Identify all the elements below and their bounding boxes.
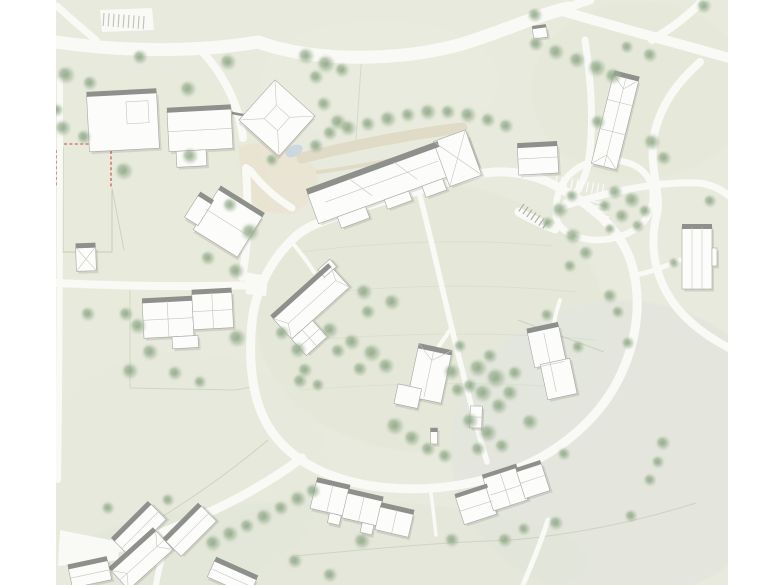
tree-canopy-core (300, 365, 308, 373)
tree-canopy-core (500, 535, 508, 543)
building-roof (517, 145, 558, 175)
tree (114, 161, 134, 181)
tree-canopy-core (623, 338, 630, 345)
tree (193, 375, 207, 389)
tree (655, 435, 671, 451)
tree-canopy-core (313, 380, 320, 387)
tree (602, 288, 618, 304)
tree (239, 518, 255, 534)
tree (330, 343, 346, 359)
tree-canopy-core (276, 503, 284, 511)
tree-canopy-core (382, 113, 391, 122)
tree (377, 357, 395, 375)
tree (703, 194, 717, 208)
tree-canopy-core (581, 248, 589, 256)
tree-canopy-core (600, 201, 607, 208)
tree (494, 438, 510, 454)
tree (521, 413, 539, 431)
tree-canopy-core (311, 72, 319, 80)
tree (219, 53, 237, 71)
tree (453, 339, 467, 353)
tree (400, 107, 416, 123)
tree (221, 525, 239, 543)
tree (598, 199, 612, 213)
tree (490, 397, 508, 415)
tree (227, 328, 247, 348)
parking-stalls (113, 14, 114, 27)
tree (443, 363, 461, 381)
tree-canopy-core (358, 286, 367, 295)
tree (568, 51, 586, 69)
tree-canopy-core (440, 451, 448, 459)
tree (623, 191, 641, 209)
tree (200, 250, 216, 266)
tree (308, 69, 324, 85)
tree (621, 336, 635, 350)
tree-canopy-core (83, 309, 91, 317)
tree (352, 361, 368, 377)
tree-canopy-core (300, 50, 309, 59)
tree-canopy-core (319, 58, 329, 68)
parking-stalls (108, 13, 109, 26)
site-plan-page (0, 0, 780, 585)
tree-canopy-core (224, 528, 233, 537)
tree-canopy-core (386, 296, 395, 305)
tree (548, 515, 564, 531)
tree (308, 138, 324, 154)
tree-canopy-core (203, 253, 211, 261)
tree-canopy-core (292, 344, 301, 353)
tree-canopy-core (346, 336, 355, 345)
tree-canopy-core (446, 366, 455, 375)
road-junction (244, 272, 268, 296)
tree-canopy-core (242, 521, 250, 529)
tree (287, 553, 303, 569)
building-house-nw-a (86, 88, 161, 154)
tree-canopy-core (443, 107, 451, 115)
tree-canopy-core (453, 385, 461, 393)
tree (482, 348, 498, 364)
tree-canopy-core (447, 535, 455, 543)
tree (360, 304, 376, 320)
tree (322, 125, 338, 141)
tree-canopy-core (464, 415, 473, 424)
tree-canopy-core (640, 206, 647, 213)
tree-canopy-core (501, 121, 509, 129)
tree (638, 204, 652, 218)
tree-canopy-core (633, 221, 640, 228)
tree (274, 325, 290, 341)
plan-area (30, 0, 780, 585)
tree-canopy-core (645, 50, 653, 58)
tree (497, 532, 513, 548)
tree (557, 447, 571, 461)
tree-canopy-core (504, 387, 513, 396)
tree (167, 365, 183, 381)
tree-canopy-core (79, 132, 87, 140)
parking-stalls (133, 15, 134, 28)
tree-canopy-core (497, 441, 505, 449)
tree (480, 112, 496, 128)
tree-canopy-core (567, 230, 576, 239)
tree-canopy-core (406, 432, 415, 441)
tree-canopy-core (670, 259, 676, 265)
tree (322, 567, 338, 583)
tree-canopy-core (567, 191, 574, 198)
tree-canopy-core (124, 365, 133, 374)
tree-canopy-core (483, 115, 491, 123)
tree-canopy-core (380, 360, 389, 369)
tree-canopy-core (103, 503, 110, 510)
tree (571, 340, 585, 354)
tree (624, 509, 638, 523)
tree-canopy-core (52, 105, 59, 112)
building-roof (87, 92, 160, 152)
tree (528, 36, 544, 52)
road (58, 80, 60, 480)
tree-canopy-core (222, 56, 231, 65)
tree-canopy-core (493, 400, 502, 409)
parking-stalls (143, 16, 144, 29)
tree (132, 49, 148, 65)
tree (54, 119, 72, 137)
tree-canopy-core (705, 196, 712, 203)
tree-canopy-core (590, 62, 600, 72)
tree-canopy-core (277, 328, 285, 336)
tree-canopy-core (571, 54, 580, 63)
tree-canopy-core (610, 187, 618, 195)
tree (420, 441, 436, 457)
tree (507, 365, 523, 381)
tree-canopy-core (230, 265, 239, 274)
tree (56, 65, 76, 85)
tree (656, 150, 672, 166)
tree (642, 47, 658, 63)
tree (289, 490, 307, 508)
tree-canopy-core (646, 136, 655, 145)
tree (547, 43, 565, 61)
tree (604, 223, 616, 235)
tree-canopy-core (531, 39, 539, 47)
tree (643, 133, 661, 151)
tree-canopy-core (471, 362, 481, 372)
tree (590, 114, 606, 130)
field-patch (530, 0, 750, 180)
tree (343, 333, 361, 351)
tree (305, 483, 321, 499)
tree (353, 532, 371, 550)
tree (563, 259, 577, 273)
tree (316, 96, 332, 112)
tree (362, 343, 382, 363)
tree (161, 493, 175, 507)
tree-canopy-core (308, 486, 316, 494)
tree-canopy-core (342, 122, 351, 131)
tree-canopy-core (144, 346, 153, 355)
building-roof (712, 248, 717, 266)
tree-canopy-core (658, 438, 666, 446)
tree (587, 58, 607, 78)
tree (255, 508, 273, 526)
tree-canopy-core (184, 150, 193, 159)
tree (578, 245, 594, 261)
tree-canopy-core (489, 371, 500, 382)
tree-canopy-core (645, 475, 652, 482)
tree (222, 197, 238, 213)
tree (227, 262, 245, 280)
tree (540, 308, 554, 322)
parking-stalls (128, 15, 129, 28)
tree (121, 362, 139, 380)
tree-canopy-core (659, 153, 667, 161)
tree-canopy-core (473, 444, 481, 452)
tree (334, 62, 350, 78)
tree-canopy-core (355, 364, 363, 372)
tree-canopy-core (365, 347, 375, 357)
tree (541, 216, 555, 230)
tree-canopy-core (607, 70, 616, 79)
tree (498, 118, 514, 134)
tree (461, 412, 479, 430)
tree (440, 104, 456, 120)
building-shed-h (75, 243, 98, 274)
tree (311, 378, 325, 392)
tree-canopy-core (626, 511, 633, 518)
tree (565, 189, 579, 203)
tree-canopy-core (423, 444, 431, 452)
parking-stalls (103, 13, 104, 26)
tree-canopy-core (455, 341, 462, 348)
tree-canopy-core (485, 351, 493, 359)
tree-canopy-core (613, 307, 620, 314)
tree (265, 153, 279, 167)
tree (631, 219, 645, 233)
tree (527, 7, 543, 23)
tree-canopy-core (292, 493, 301, 502)
tree-canopy-core (132, 320, 141, 329)
tree-canopy-core (422, 106, 431, 115)
tree-canopy-core (465, 381, 473, 389)
tree-canopy-core (117, 165, 127, 175)
tree-canopy-core (325, 570, 333, 578)
tree-canopy-core (605, 291, 613, 299)
tree-canopy-core (57, 122, 66, 131)
tree-canopy-core (388, 420, 398, 430)
tree-canopy-core (319, 99, 327, 107)
tree (50, 103, 64, 117)
tree (551, 201, 569, 219)
tree-canopy-core (311, 141, 319, 149)
tree (611, 305, 625, 319)
tree (462, 378, 478, 394)
tree (403, 429, 421, 447)
tree (292, 373, 308, 389)
tree-canopy-core (337, 65, 345, 73)
tree (459, 106, 477, 124)
tree (80, 306, 96, 322)
tree (564, 227, 582, 245)
tree-canopy-core (363, 307, 371, 315)
tree-canopy-core (593, 117, 601, 125)
tree-canopy-core (653, 457, 660, 464)
tree-canopy-core (333, 346, 341, 354)
tree-canopy-core (135, 52, 143, 60)
tree (82, 75, 98, 91)
tree-canopy-core (267, 155, 274, 162)
tree-canopy-core (163, 495, 170, 502)
tree-canopy-core (524, 416, 533, 425)
tree (614, 208, 630, 224)
tree-canopy-core (295, 376, 303, 384)
tree-canopy-core (606, 225, 612, 231)
tree (118, 306, 134, 322)
tree-canopy-core (542, 310, 549, 317)
tree (517, 522, 531, 536)
tree-canopy-core (559, 449, 566, 456)
tree (297, 47, 315, 65)
tree (76, 129, 92, 145)
parking-stalls (123, 15, 124, 28)
building-house-f (682, 224, 719, 292)
tree-canopy-core (530, 10, 538, 18)
tree-canopy-core (543, 218, 550, 225)
tree (478, 423, 498, 443)
tree-canopy-core (617, 211, 625, 219)
tree (204, 534, 222, 552)
tree-canopy-core (622, 42, 629, 49)
tree (179, 80, 197, 98)
tree-canopy-core (356, 535, 365, 544)
tree-canopy-core (481, 427, 491, 437)
tree (643, 473, 657, 487)
tree (383, 293, 401, 311)
building-roof (172, 335, 199, 348)
building-eave-edge (431, 428, 438, 432)
tree (651, 455, 665, 469)
parking-stalls (138, 16, 139, 29)
tree-canopy-core (324, 324, 333, 333)
parking-stalls (118, 14, 119, 27)
tree (620, 40, 634, 54)
tree-canopy-core (573, 342, 580, 349)
tree (129, 317, 147, 335)
tree (470, 441, 486, 457)
tree (668, 257, 680, 269)
tree-canopy-core (243, 226, 253, 236)
building-eave-edge (75, 243, 95, 249)
tree-canopy-core (325, 128, 333, 136)
tree-canopy-core (550, 46, 559, 55)
tree-canopy-core (230, 332, 240, 342)
site-plan-svg (0, 0, 780, 585)
tree (419, 103, 437, 121)
tree-canopy-core (519, 524, 526, 531)
tree-canopy-core (626, 194, 635, 203)
tree (385, 416, 405, 436)
tree-canopy-core (85, 78, 93, 86)
tree-canopy-core (195, 377, 202, 384)
tree (181, 147, 199, 165)
tree (379, 110, 397, 128)
tree (289, 341, 307, 359)
tree-canopy-core (332, 116, 341, 125)
tree-canopy-core (207, 537, 216, 546)
tree-canopy-core (462, 109, 471, 118)
tree (321, 321, 339, 339)
tree-canopy-core (225, 200, 233, 208)
road (56, 283, 258, 286)
tree (607, 184, 623, 200)
tree (437, 448, 453, 464)
tree (444, 532, 460, 548)
tree (339, 119, 357, 137)
tree-canopy-core (403, 110, 411, 118)
tree-canopy-core (258, 511, 267, 520)
tree (360, 116, 376, 132)
tree-canopy-core (565, 261, 572, 268)
building-roof (682, 227, 712, 289)
building-eave-edge (682, 224, 712, 229)
tree-canopy-core (510, 368, 518, 376)
tree-canopy-core (363, 119, 371, 127)
tree (240, 222, 260, 242)
tree-canopy-core (59, 69, 69, 79)
tree (355, 283, 373, 301)
tree-canopy-core (170, 368, 178, 376)
tree (141, 343, 159, 361)
tree-canopy-core (551, 518, 559, 526)
tree-canopy-core (182, 83, 191, 92)
tree (101, 501, 115, 515)
tree-canopy-core (554, 204, 563, 213)
tree-canopy-core (290, 556, 298, 564)
tree-canopy-core (699, 1, 707, 9)
tree (604, 67, 622, 85)
tree (273, 500, 289, 516)
tree-canopy-core (121, 309, 129, 317)
building-house-d (517, 141, 561, 178)
